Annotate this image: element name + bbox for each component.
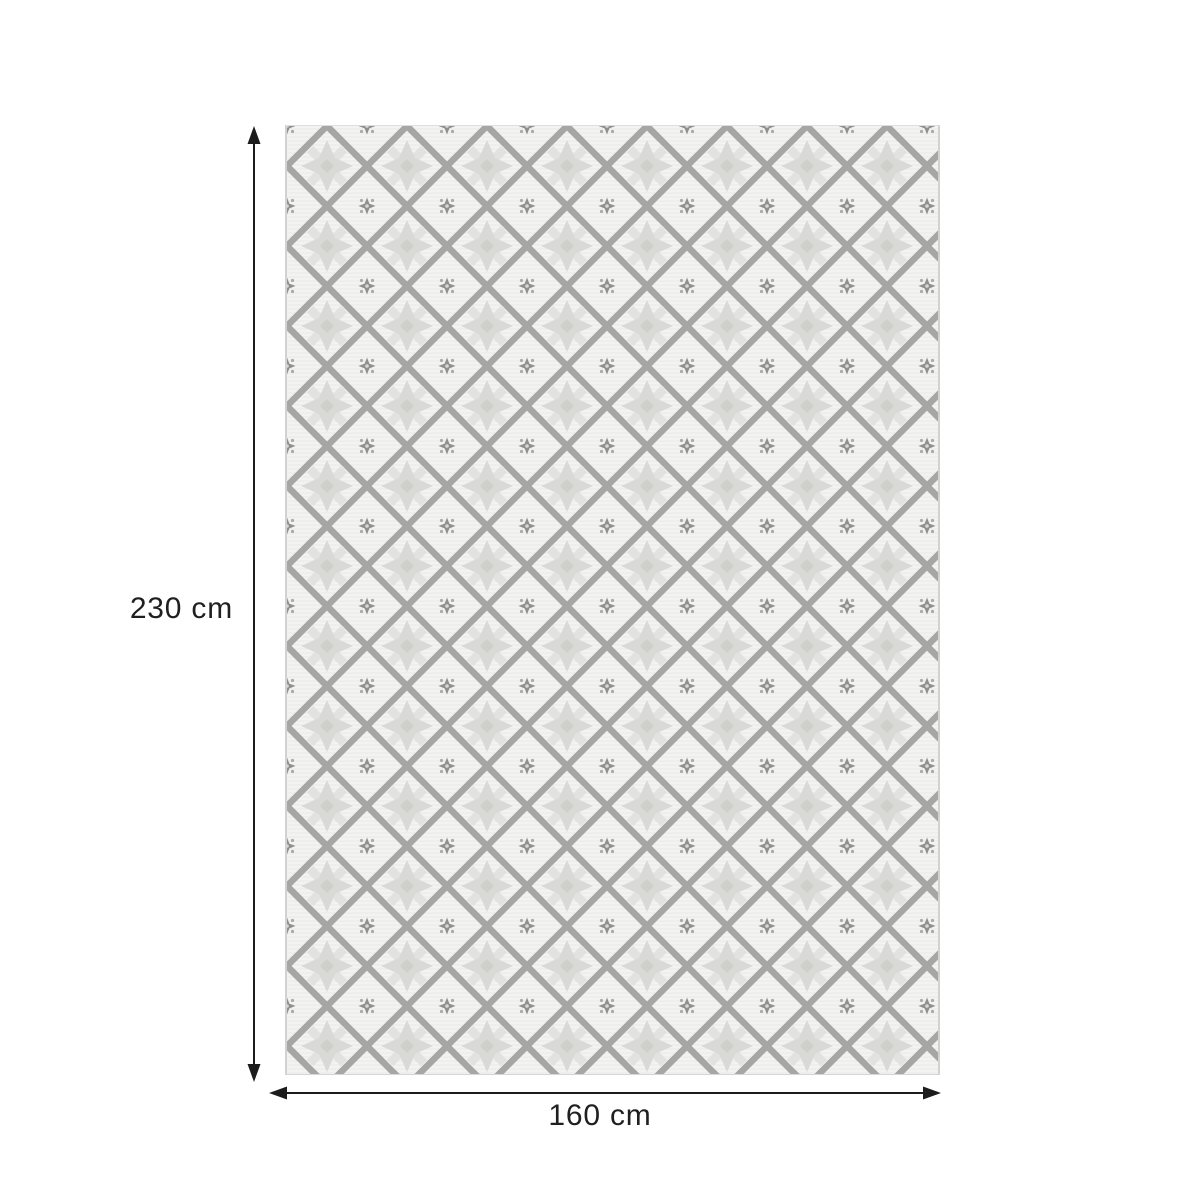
- height-dimension-label: 230 cm: [78, 594, 233, 624]
- rug-image: [285, 125, 940, 1075]
- arrow-right-icon: [923, 1087, 941, 1100]
- width-dimension-label: 160 cm: [480, 1101, 720, 1131]
- product-dimension-diagram: 230 cm 160 cm: [0, 0, 1200, 1200]
- arrow-up-icon: [248, 126, 261, 144]
- rug-pattern: [287, 126, 938, 1074]
- arrow-left-icon: [269, 1087, 287, 1100]
- arrow-down-icon: [248, 1064, 261, 1082]
